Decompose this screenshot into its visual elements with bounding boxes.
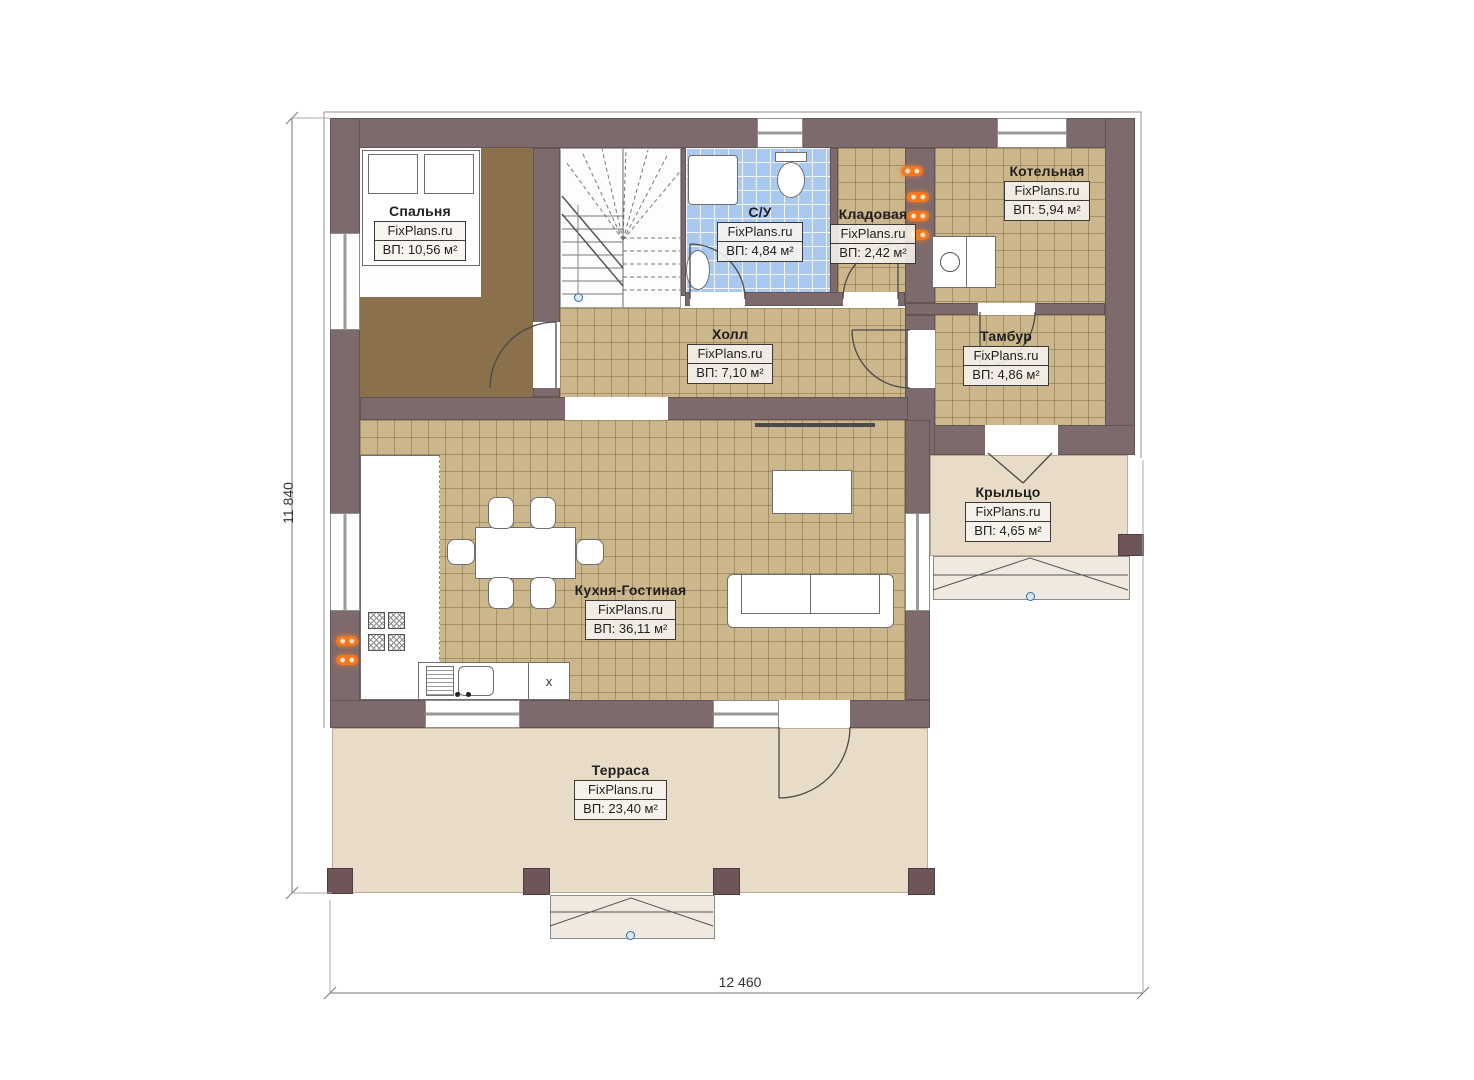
door-opening-kitchen-terrace [779, 700, 850, 728]
door-opening-vestibule-boiler [978, 303, 1035, 315]
shower-icon [688, 155, 738, 205]
room-label-kitchen-living: Кухня-Гостиная FixPlans.ru ВП: 36,11 м² [553, 582, 708, 640]
room-area: ВП: 4,86 м² [964, 366, 1047, 384]
terrace-pillar [908, 868, 935, 895]
room-area: ВП: 7,10 м² [688, 364, 771, 382]
faucet-dot-icon [455, 692, 460, 697]
room-info-box: FixPlans.ru ВП: 5,94 м² [1004, 181, 1089, 221]
brand-watermark: FixPlans.ru [966, 503, 1049, 522]
room-area: ВП: 23,40 м² [575, 800, 666, 818]
room-label-bedroom: Спальня FixPlans.ru ВП: 10,56 м² [358, 203, 482, 261]
boiler-divider [966, 237, 967, 287]
room-name: Тамбур [944, 328, 1068, 344]
radiator-icon [907, 192, 929, 202]
room-area: ВП: 36,11 м² [586, 620, 676, 638]
room-name: Спальня [358, 203, 482, 219]
room-label-boiler: Котельная FixPlans.ru ВП: 5,94 м² [983, 163, 1111, 221]
stove-burner-icon [368, 612, 385, 629]
room-name: Кладовая [808, 206, 938, 222]
room-name: Терраса [558, 762, 683, 778]
stairs-marker-icon [574, 293, 583, 302]
window-left-kitchen [330, 513, 360, 611]
radiator-icon [336, 636, 358, 646]
window-kitchen-terrace [713, 700, 779, 728]
brand-watermark: FixPlans.ru [718, 223, 801, 242]
room-area: ВП: 5,94 м² [1005, 201, 1088, 219]
dishwasher-cabinet: х [528, 662, 570, 700]
room-info-box: FixPlans.ru ВП: 2,42 м² [830, 224, 915, 264]
chair [447, 539, 475, 565]
porch-pillar [1118, 534, 1144, 556]
room-name: Кухня-Гостиная [553, 582, 708, 598]
bed-pillow [424, 154, 474, 194]
bed-pillow [368, 154, 418, 194]
tv-stand [772, 470, 852, 514]
bedroom-floor-lower [360, 297, 533, 397]
floor-plan-canvas: х [0, 0, 1474, 1080]
radiator-icon [901, 166, 923, 176]
room-name: Холл [668, 326, 792, 342]
room-label-hall: Холл FixPlans.ru ВП: 7,10 м² [668, 326, 792, 384]
room-area: ВП: 2,42 м² [831, 244, 914, 262]
tv-icon [755, 423, 875, 427]
brand-watermark: FixPlans.ru [964, 347, 1047, 366]
toilet-tank-icon [775, 152, 807, 162]
radiator-icon [336, 655, 358, 665]
terrace-pillar [523, 868, 550, 895]
brand-watermark: FixPlans.ru [1005, 182, 1088, 201]
room-label-vestibule: Тамбур FixPlans.ru ВП: 4,86 м² [944, 328, 1068, 386]
faucet-dot-icon [466, 692, 471, 697]
terrace-pillar [327, 868, 353, 894]
room-label-terrace: Терраса FixPlans.ru ВП: 23,40 м² [558, 762, 683, 820]
window-top-bathroom [757, 118, 803, 148]
stairwell-floor [560, 148, 681, 308]
dishwasher-label: х [529, 663, 569, 699]
brand-watermark: FixPlans.ru [688, 345, 771, 364]
sofa-seat-divider [810, 575, 811, 613]
room-name: Крыльцо [946, 484, 1070, 500]
brand-watermark: FixPlans.ru [586, 601, 676, 620]
room-info-box: FixPlans.ru ВП: 36,11 м² [585, 600, 677, 640]
window-top-boiler [997, 118, 1067, 148]
room-name: С/У [698, 204, 822, 220]
room-info-box: FixPlans.ru ВП: 10,56 м² [374, 221, 467, 261]
brand-watermark: FixPlans.ru [575, 781, 666, 800]
room-info-box: FixPlans.ru ВП: 4,65 м² [965, 502, 1050, 542]
dimension-width: 12 460 [710, 974, 770, 990]
chair [488, 577, 514, 609]
terrace-pillar [713, 868, 740, 895]
terrace-steps-marker-icon [626, 931, 635, 940]
brand-watermark: FixPlans.ru [375, 222, 466, 241]
stove-burner-icon [388, 634, 405, 651]
bedroom-wardrobe-floor [481, 148, 533, 297]
sink-basin-icon [458, 666, 494, 696]
room-area: ВП: 4,84 м² [718, 242, 801, 260]
room-label-bathroom: С/У FixPlans.ru ВП: 4,84 м² [698, 204, 822, 262]
room-label-porch: Крыльцо FixPlans.ru ВП: 4,65 м² [946, 484, 1070, 542]
room-info-box: FixPlans.ru ВП: 7,10 м² [687, 344, 772, 384]
door-opening-entrance [985, 425, 1058, 455]
door-opening-hall-vestibule [908, 330, 935, 388]
room-area: ВП: 4,65 м² [966, 522, 1049, 540]
chair [530, 497, 556, 529]
window-kitchen-sink [425, 700, 520, 728]
window-right-kitchen [905, 513, 930, 611]
room-name: Котельная [983, 163, 1111, 179]
dining-table [475, 527, 576, 579]
stove-burner-icon [368, 634, 385, 651]
room-area: ВП: 10,56 м² [375, 241, 466, 259]
room-info-box: FixPlans.ru ВП: 4,84 м² [717, 222, 802, 262]
porch-steps-marker-icon [1026, 592, 1035, 601]
door-opening-bedroom [533, 322, 560, 388]
door-opening-storage [843, 292, 898, 306]
chair [576, 539, 604, 565]
stove-burner-icon [388, 612, 405, 629]
opening-hall-kitchen [565, 397, 668, 420]
chair [488, 497, 514, 529]
room-info-box: FixPlans.ru ВП: 4,86 м² [963, 346, 1048, 386]
dimension-height: 11 840 [280, 473, 296, 533]
brand-watermark: FixPlans.ru [831, 225, 914, 244]
room-info-box: FixPlans.ru ВП: 23,40 м² [574, 780, 667, 820]
window-left-bedroom [330, 233, 360, 330]
toilet-bowl-icon [777, 162, 805, 198]
room-kitchen-living-floor [360, 420, 905, 700]
boiler-dial-icon [940, 252, 960, 272]
door-opening-bathroom [690, 292, 745, 306]
room-label-storage: Кладовая FixPlans.ru ВП: 2,42 м² [808, 206, 938, 264]
sink-drainboard-icon [426, 666, 454, 696]
